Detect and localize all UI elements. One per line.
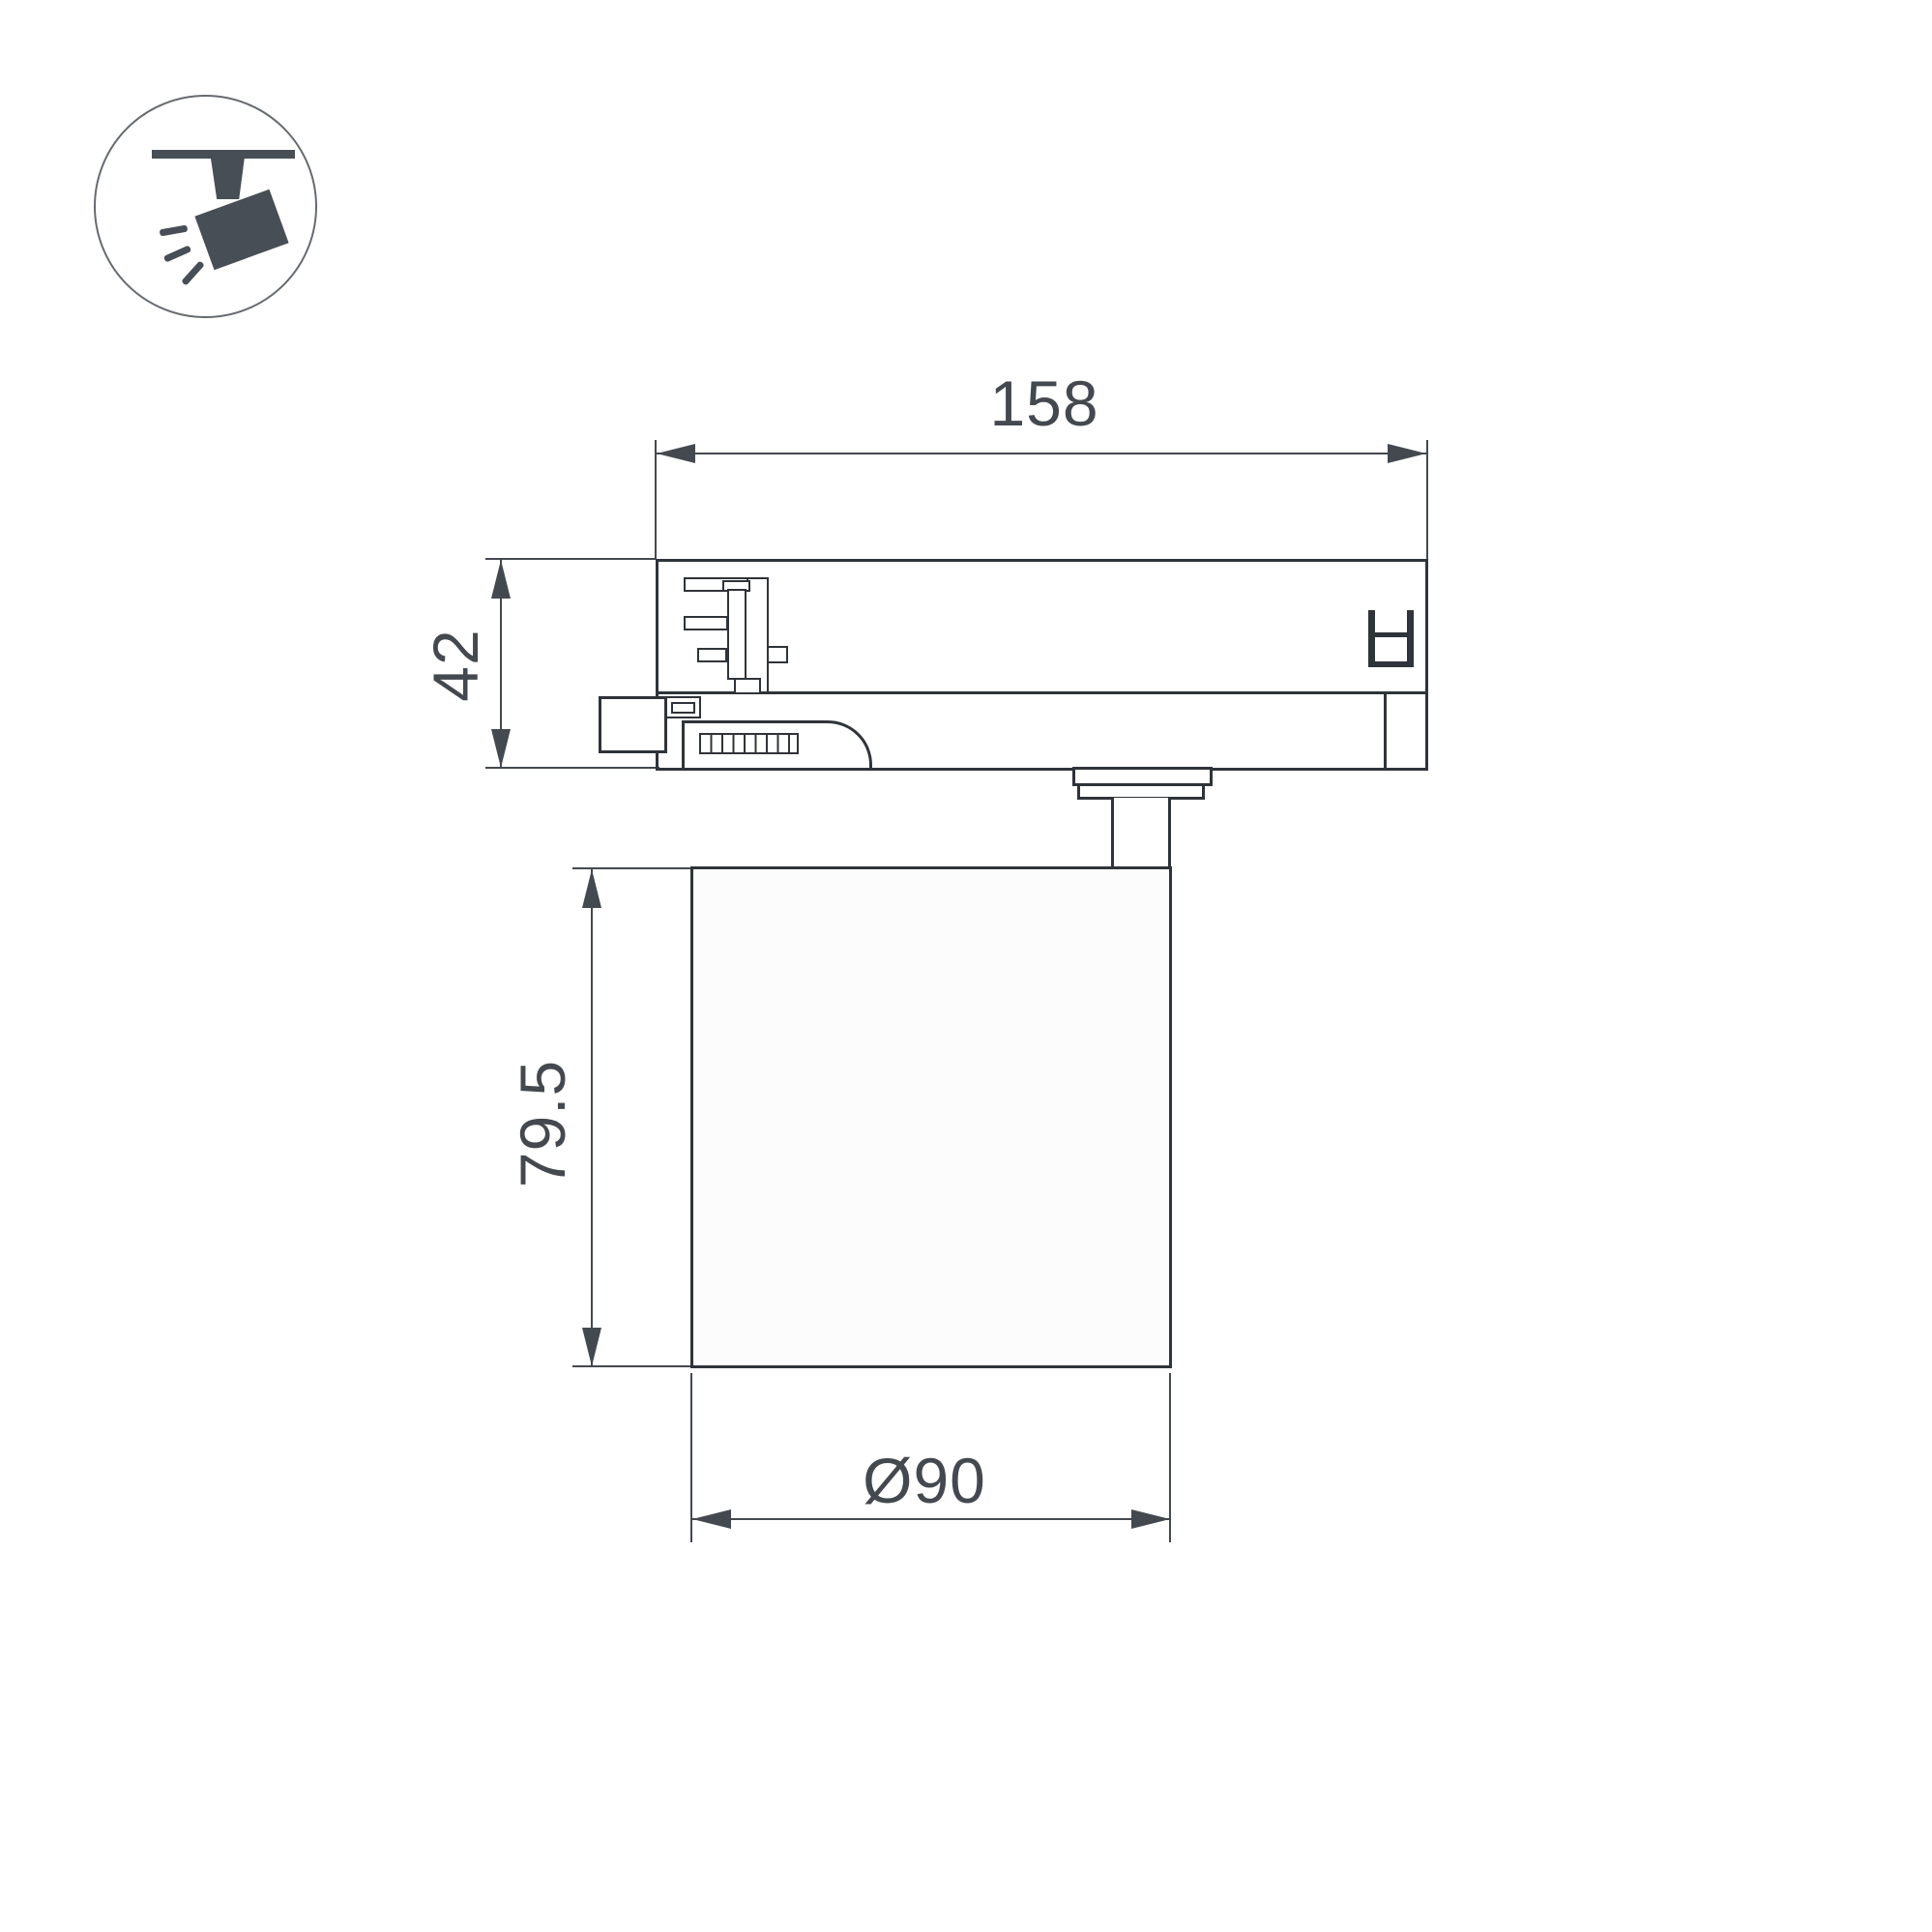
light-ray-icon — [163, 245, 191, 262]
clip-bottom-bar — [1368, 661, 1414, 667]
technical-drawing-canvas: 158 42 79.5 Ø90 — [0, 0, 1932, 1932]
dim-158-arrow-right — [1388, 444, 1426, 463]
adapter-top-edge — [656, 559, 1428, 562]
dim-158-extension-right — [1426, 440, 1428, 559]
baseplate-divider — [1384, 691, 1387, 771]
latch-grip-ribs — [699, 733, 799, 754]
contact-wall-line — [767, 577, 769, 694]
lamp-body-cylinder — [690, 866, 1172, 1368]
adapter-right-edge — [1425, 559, 1428, 771]
clip-mid-bar — [1368, 632, 1414, 637]
contact-stem — [727, 589, 746, 680]
dim-158-arrow-left — [657, 444, 695, 463]
dim-158-line — [657, 453, 1426, 454]
contact-top-link — [747, 577, 769, 579]
contact-tab-middle — [684, 616, 728, 630]
dim-79-label: 79.5 — [506, 1060, 579, 1187]
dim-90-arrow-right — [1131, 1509, 1170, 1529]
dim-90-line — [692, 1518, 1170, 1520]
contact-tab-lower — [697, 648, 727, 662]
dim-42-label: 42 — [419, 629, 492, 701]
dim-158-label: 158 — [989, 366, 1098, 440]
dim-42-arrow-up — [491, 560, 511, 599]
dim-90-arrow-left — [692, 1509, 731, 1529]
dim-79-arrow-down — [582, 1328, 601, 1366]
light-ray-icon — [160, 225, 189, 237]
lock-block — [599, 696, 667, 753]
adapter-mid-edge — [656, 691, 1428, 694]
swivel-neck — [1111, 798, 1171, 869]
latch-stop-inner — [671, 702, 695, 714]
dim-90-label: Ø90 — [863, 1444, 986, 1517]
clip-prong-right — [1407, 610, 1414, 667]
track-spotlight-icon — [94, 95, 317, 318]
dim-42-extension-top — [485, 558, 656, 560]
contact-side-arm — [767, 646, 788, 663]
dim-42-extension-bottom — [485, 767, 659, 769]
dim-79-line — [591, 869, 593, 1366]
dim-42-arrow-down — [491, 729, 511, 768]
clip-prong-left — [1368, 610, 1375, 667]
dim-79-arrow-up — [582, 869, 601, 908]
spotlight-head — [194, 190, 288, 270]
contact-foot — [734, 678, 761, 694]
fixture-stem — [210, 157, 245, 199]
light-ray-icon — [181, 260, 205, 285]
